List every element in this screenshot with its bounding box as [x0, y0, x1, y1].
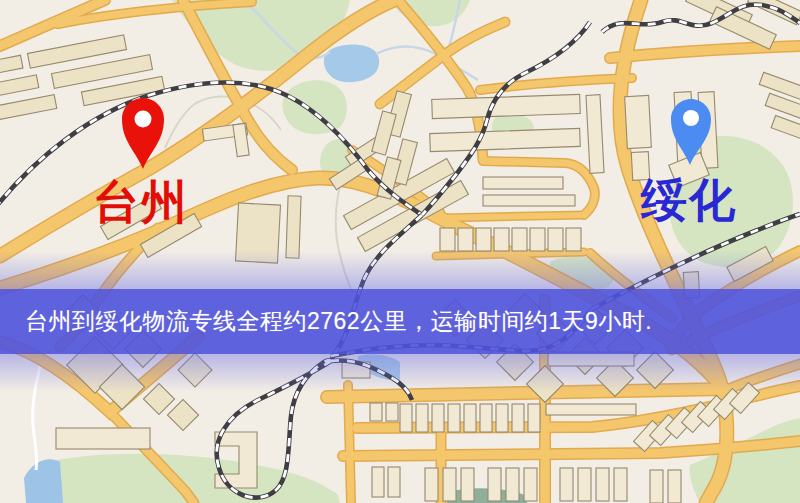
origin-city-label: 台州: [93, 179, 189, 225]
map-viewport: 台州 绥化 台州到绥化物流专线全程约2762公里，运输时间约1天9小时.: [0, 0, 800, 503]
route-info-text: 台州到绥化物流专线全程约2762公里，运输时间约1天9小时.: [0, 306, 652, 337]
route-info-banner: 台州到绥化物流专线全程约2762公里，运输时间约1天9小时.: [0, 289, 800, 354]
map-image: [0, 0, 800, 503]
destination-city-label: 绥化: [641, 177, 737, 223]
